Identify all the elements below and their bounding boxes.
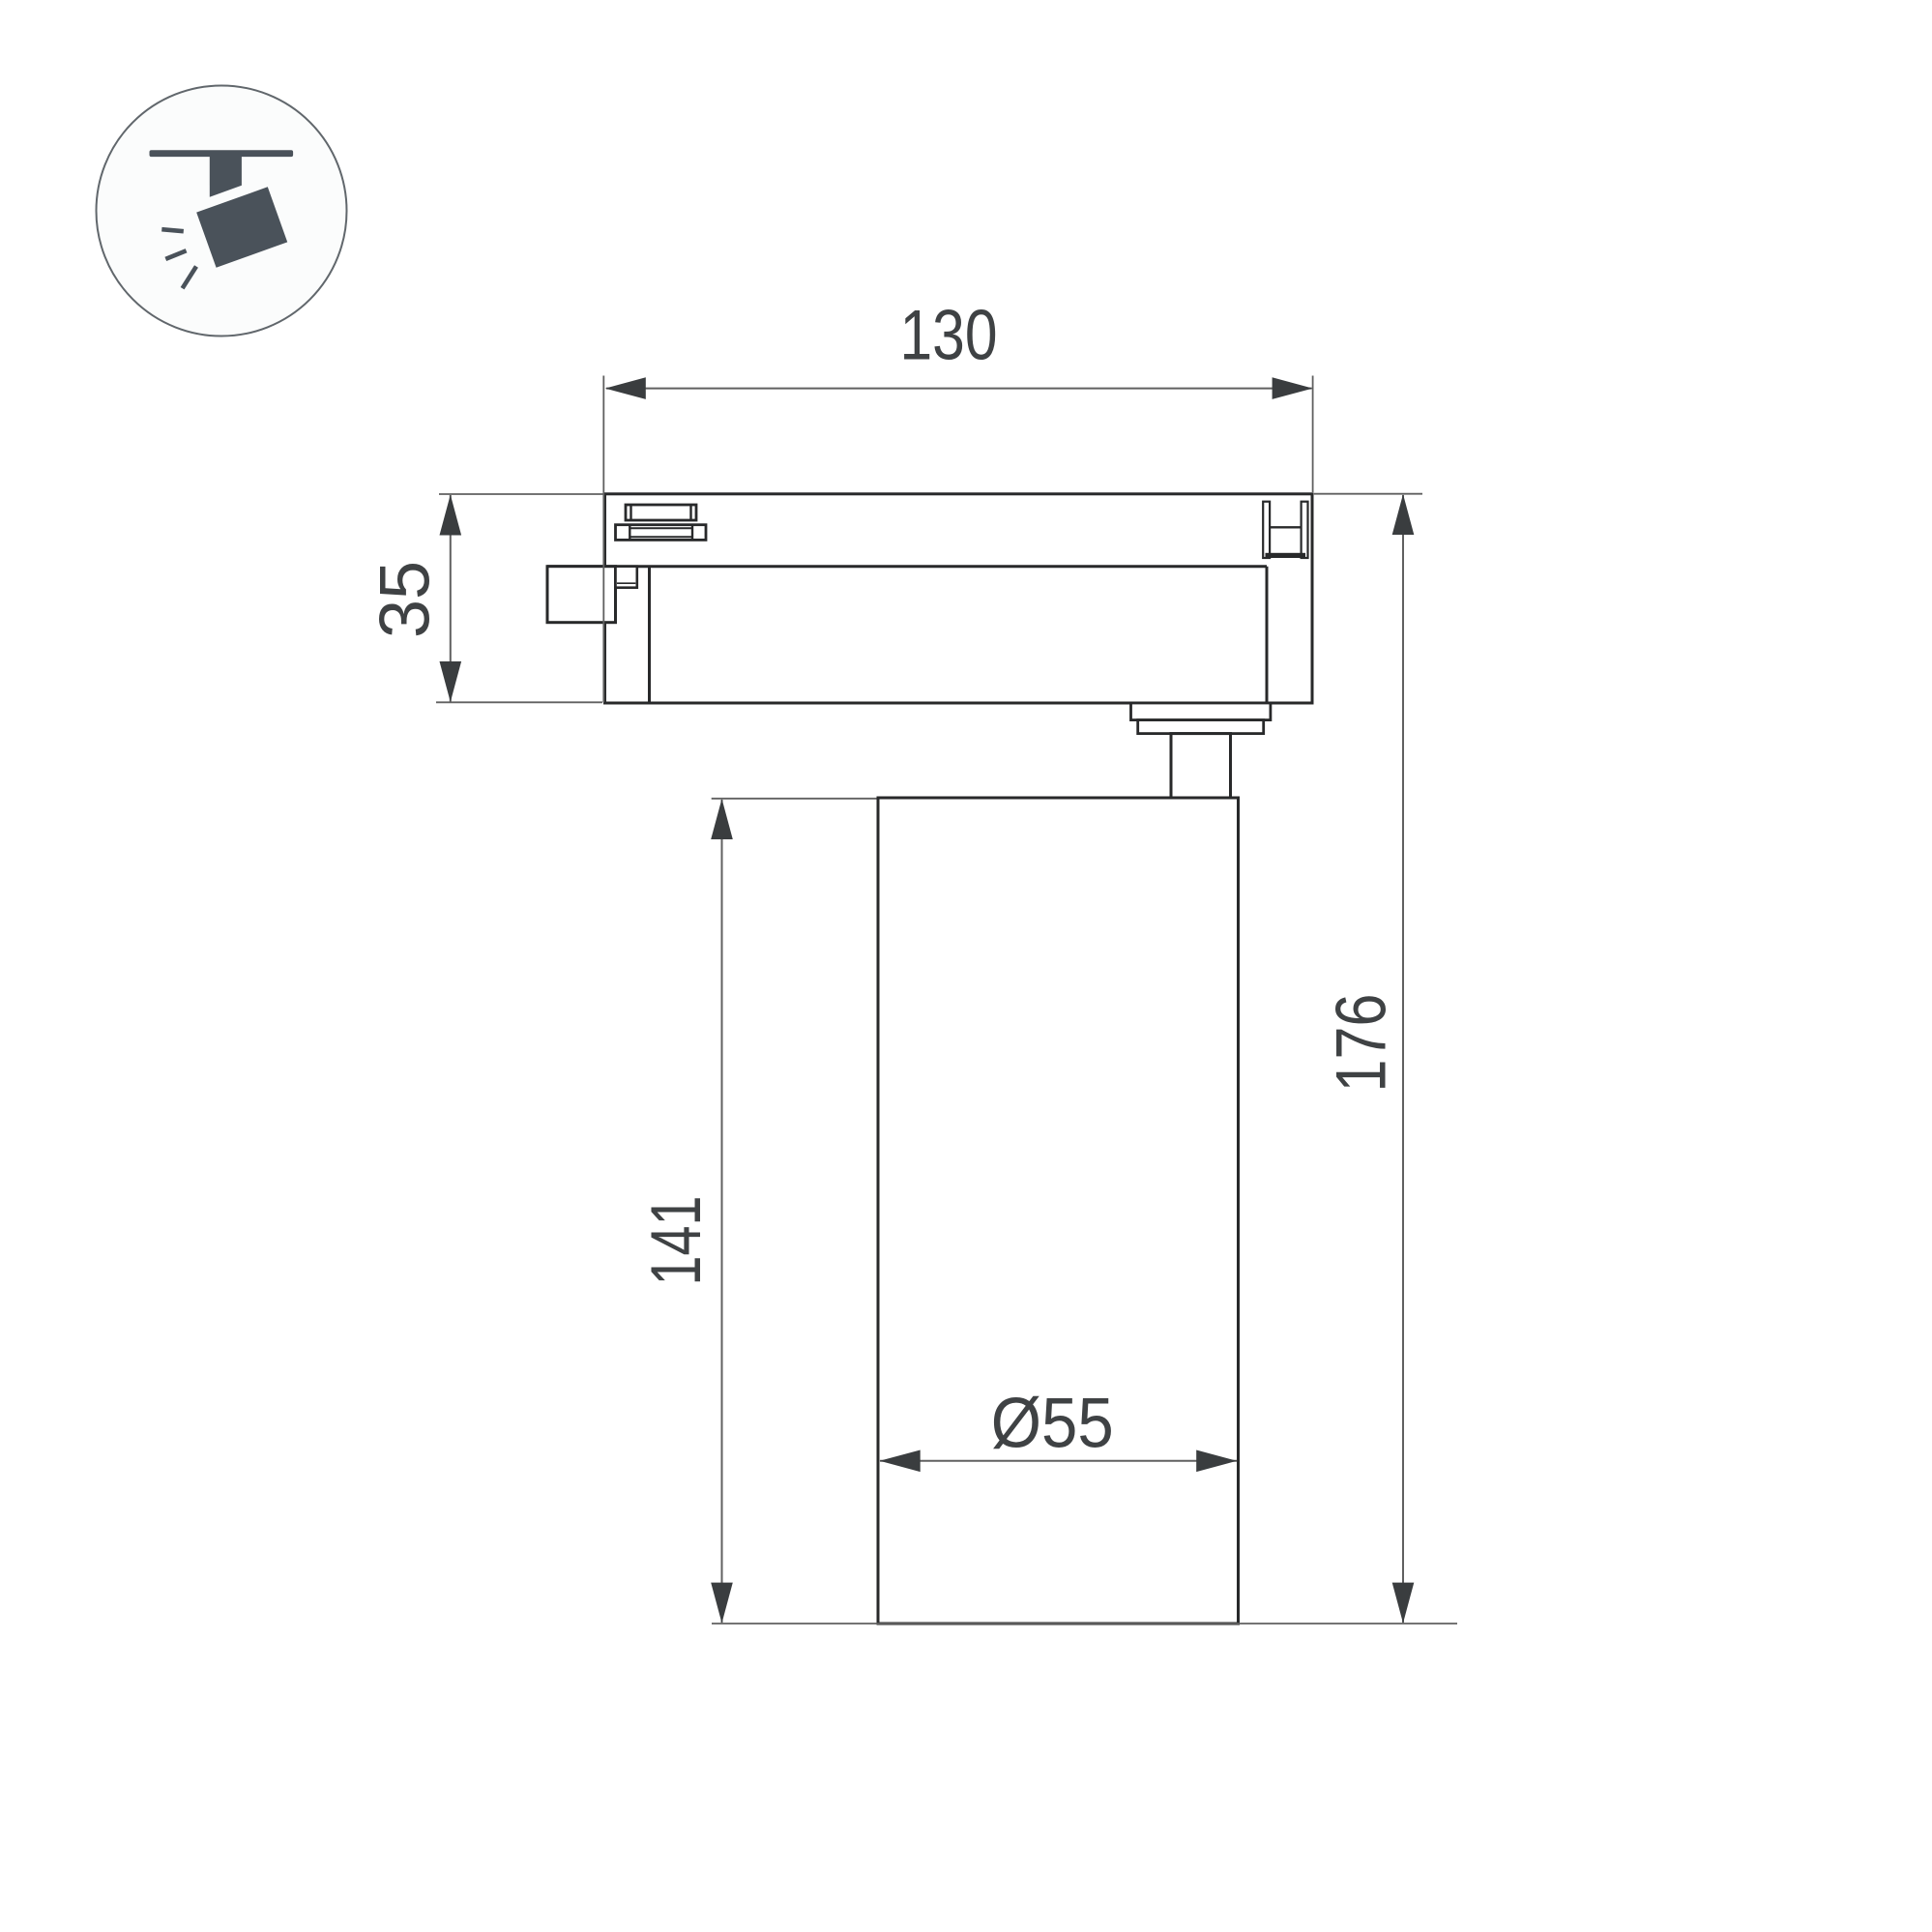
svg-text:35: 35 — [366, 561, 445, 638]
svg-text:130: 130 — [900, 297, 998, 375]
svg-text:176: 176 — [1323, 994, 1401, 1093]
svg-text:Ø55: Ø55 — [991, 1385, 1114, 1463]
svg-text:141: 141 — [637, 1196, 716, 1286]
